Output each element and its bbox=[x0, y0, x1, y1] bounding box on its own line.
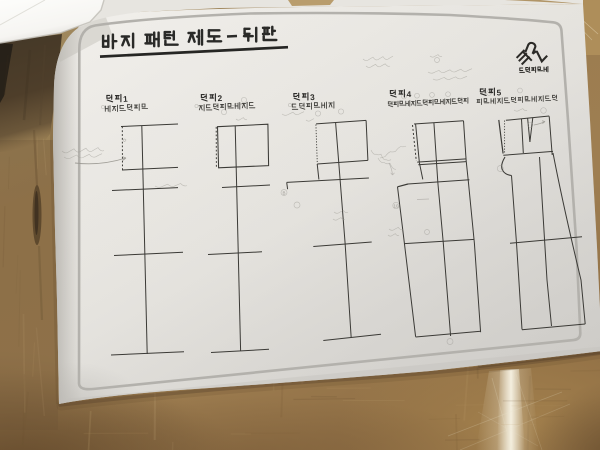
svg-text:4: 4 bbox=[406, 90, 411, 99]
svg-text:5: 5 bbox=[496, 88, 501, 97]
svg-text:10: 10 bbox=[393, 203, 399, 208]
svg-text:2: 2 bbox=[217, 94, 222, 103]
svg-text:B: B bbox=[282, 190, 285, 195]
svg-text:1: 1 bbox=[123, 95, 128, 104]
svg-text:3: 3 bbox=[310, 93, 315, 102]
